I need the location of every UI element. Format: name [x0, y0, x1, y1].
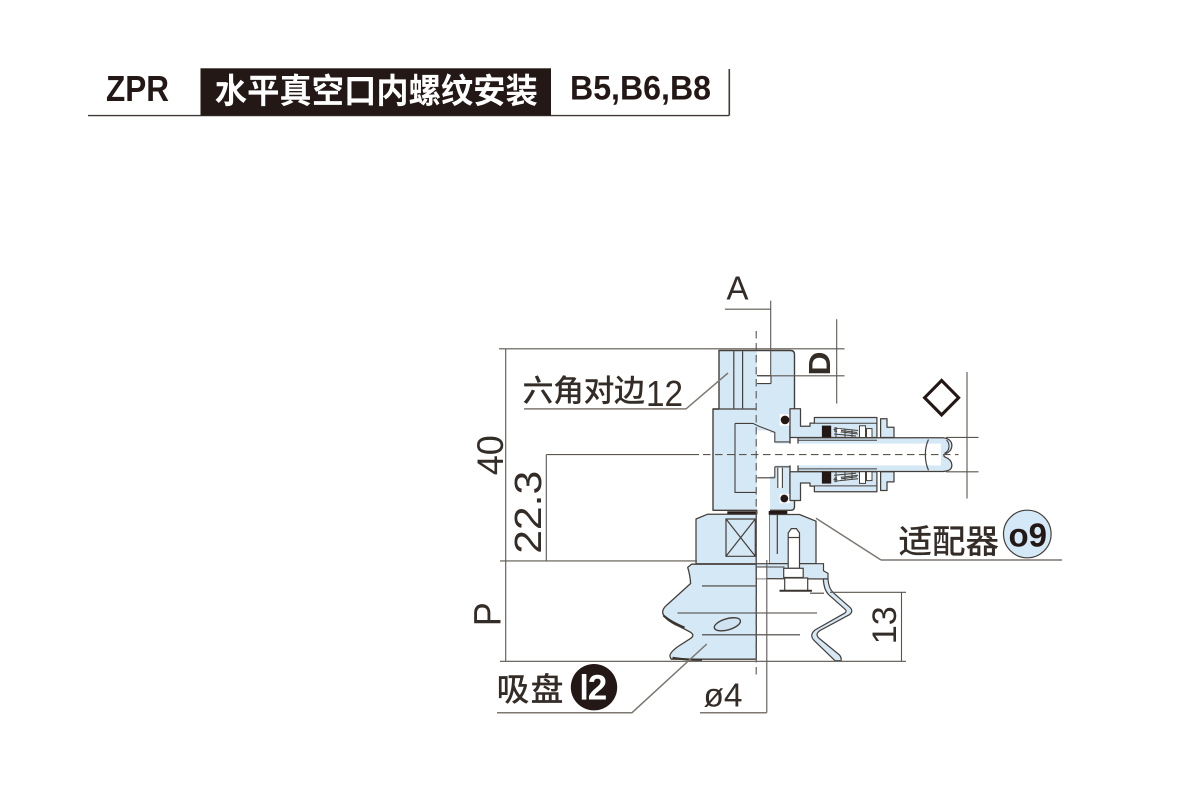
svg-text:ZPR: ZPR — [106, 68, 169, 109]
svg-text:2: 2 — [588, 668, 607, 707]
svg-text:13: 13 — [866, 606, 904, 644]
svg-text:ø4: ø4 — [704, 677, 743, 714]
svg-text:P: P — [467, 602, 509, 626]
svg-text:22.3: 22.3 — [508, 471, 550, 554]
svg-text:B5,B6,B8: B5,B6,B8 — [570, 70, 711, 108]
svg-text:40: 40 — [470, 435, 511, 475]
svg-text:12: 12 — [646, 373, 683, 414]
svg-text:A: A — [726, 270, 748, 307]
svg-text:D: D — [802, 352, 837, 376]
svg-text:o9: o9 — [1009, 517, 1048, 554]
